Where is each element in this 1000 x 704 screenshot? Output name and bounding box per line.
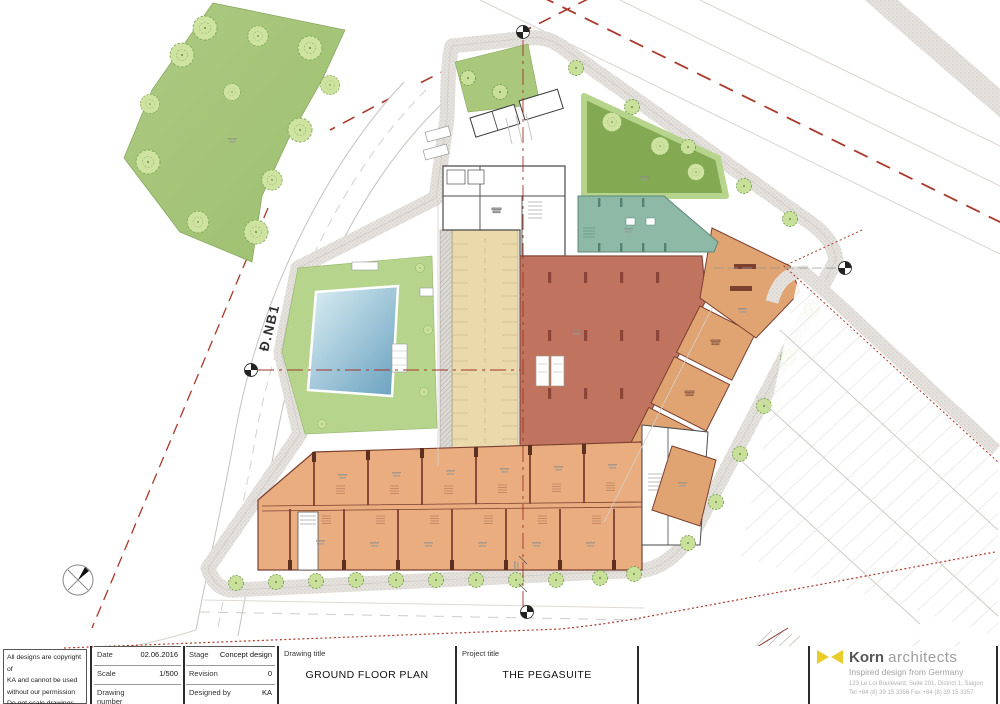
- copyright-line: without our permission: [7, 687, 83, 699]
- grid-marker-icon: [839, 262, 852, 275]
- logo-name: Korn architects: [849, 649, 957, 666]
- drawing-title: GROUND FLOOR PLAN: [280, 669, 454, 681]
- designed-by-row: Designed by KA: [186, 685, 275, 703]
- drawing-number-row: Drawing number: [94, 685, 181, 704]
- townhouse-row: [258, 442, 642, 570]
- titleblock-divider: [183, 646, 185, 704]
- logo-name-light: architects: [888, 649, 957, 666]
- stage-row: Stage Concept design: [186, 647, 275, 666]
- south-road: [200, 600, 644, 620]
- parking-lot-east: [736, 230, 998, 636]
- grid-marker-icon: [245, 364, 258, 377]
- titleblock-divider: [277, 646, 279, 704]
- copyright-line: Do not scale drawings.: [7, 698, 83, 704]
- copyright-line: All designs are copyright of: [7, 652, 83, 675]
- field-label: Drawing number: [97, 688, 143, 704]
- logo-tagline: Inspired design from Germany: [849, 667, 996, 677]
- titleblock-divider: [808, 646, 810, 704]
- titleblock-divider: [90, 646, 92, 704]
- field-label: Date: [97, 650, 113, 659]
- field-value: 02.06.2016: [140, 650, 178, 659]
- parking-ramp-band: [440, 230, 518, 470]
- field-value: KA: [262, 688, 272, 697]
- grid-marker-icon: [521, 606, 534, 619]
- drawing-title-label: Drawing title: [280, 646, 454, 658]
- logo-address-line2: Tel +84 (8) 39 15 3356 Fax +84 (8) 39 15…: [849, 689, 996, 698]
- revision-row: Revision 0: [186, 666, 275, 685]
- titleblock-divider: [996, 646, 998, 704]
- copyright-line: KA and cannot be used: [7, 675, 83, 687]
- field-label: Scale: [97, 669, 116, 678]
- project-title-label: Project title: [458, 646, 636, 658]
- field-label: Stage: [189, 650, 209, 659]
- drawing-title-section: Drawing title GROUND FLOOR PLAN: [280, 646, 454, 704]
- logo-name-bold: Korn: [849, 649, 884, 666]
- logo-address-line1: 123 Le Loi Boulevard, Suite 201, Distric…: [849, 680, 996, 689]
- empty-section: [639, 646, 807, 704]
- site-plan-drawing: Đ.NB1: [0, 0, 1000, 704]
- project-title-section: Project title THE PEGASUITE: [458, 646, 636, 704]
- field-value: Concept design: [220, 650, 272, 659]
- copyright-note: All designs are copyright of KA and cann…: [3, 649, 87, 704]
- field-value: 1/500: [159, 669, 178, 678]
- grid-marker-icon: [517, 26, 530, 39]
- stage-section: Stage Concept design Revision 0 Designed…: [186, 646, 275, 704]
- blueprint-page: Đ.NB1: [0, 0, 1000, 704]
- date-row: Date 02.06.2016: [94, 647, 181, 666]
- field-value: 0: [268, 669, 272, 678]
- date-section: Date 02.06.2016 Scale 1/500 Drawing numb…: [94, 646, 181, 704]
- field-label: Revision: [189, 669, 218, 678]
- korn-logo-icon: [816, 648, 844, 666]
- titleblock-divider: [455, 646, 457, 704]
- architect-logo-block: Korn architects Inspired design from Ger…: [812, 646, 996, 704]
- north-arrow-icon: [63, 565, 93, 595]
- scale-row: Scale 1/500: [94, 666, 181, 685]
- field-label: Designed by: [189, 688, 231, 697]
- project-title: THE PEGASUITE: [458, 669, 636, 681]
